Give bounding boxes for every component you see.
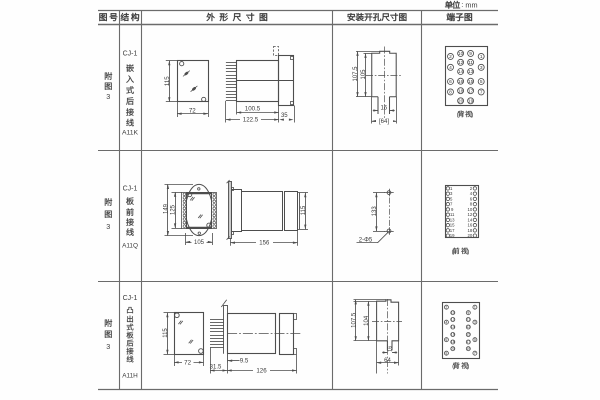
svg-text:11: 11: [450, 212, 455, 217]
svg-text:149: 149: [163, 203, 169, 214]
svg-text:3: 3: [106, 342, 110, 351]
svg-text:10: 10: [451, 311, 455, 315]
svg-text:115: 115: [163, 328, 169, 338]
svg-text:19: 19: [468, 98, 474, 104]
svg-text:3: 3: [474, 320, 476, 324]
svg-text:CJ-1: CJ-1: [123, 186, 138, 193]
svg-text:6: 6: [445, 338, 447, 342]
svg-text:14: 14: [458, 69, 464, 75]
svg-text:18: 18: [451, 340, 455, 344]
svg-text:20: 20: [468, 233, 473, 238]
svg-text:CJ-1: CJ-1: [123, 295, 138, 302]
svg-text:6: 6: [449, 79, 452, 85]
svg-text:19: 19: [466, 347, 470, 351]
svg-text:105: 105: [194, 240, 205, 246]
svg-text:35: 35: [281, 113, 288, 119]
svg-text:16: 16: [380, 105, 387, 111]
svg-text:17: 17: [466, 340, 470, 344]
svg-text:2: 2: [445, 305, 447, 309]
svg-text:19: 19: [450, 233, 455, 238]
svg-text:12: 12: [451, 318, 455, 322]
svg-text:11: 11: [468, 60, 473, 66]
svg-text:7: 7: [480, 90, 483, 96]
svg-text:[64]: [64]: [379, 119, 389, 125]
svg-text:16: 16: [388, 346, 394, 352]
svg-text:17: 17: [468, 88, 474, 94]
svg-text:17: 17: [450, 228, 455, 233]
svg-text:3: 3: [106, 222, 110, 231]
svg-text:CJ-1: CJ-1: [123, 50, 138, 57]
svg-text:): ): [471, 111, 473, 118]
svg-text:A11K: A11K: [122, 129, 139, 136]
svg-text:2: 2: [449, 54, 452, 60]
svg-text:4: 4: [445, 320, 447, 324]
svg-text:104: 104: [364, 315, 370, 326]
svg-text:1: 1: [480, 54, 483, 60]
svg-text:1: 1: [474, 305, 476, 309]
svg-text:11: 11: [466, 318, 470, 322]
svg-text:12: 12: [468, 212, 473, 217]
svg-text:15: 15: [468, 79, 474, 85]
svg-text:): ): [467, 363, 469, 370]
svg-text:122.5: 122.5: [243, 117, 259, 124]
svg-text:2-Φ5: 2-Φ5: [359, 237, 373, 243]
svg-text:16: 16: [451, 333, 455, 337]
svg-text:115: 115: [164, 76, 171, 86]
svg-text:): ): [467, 248, 469, 255]
svg-text:20: 20: [451, 347, 455, 351]
svg-text:18: 18: [468, 228, 473, 233]
svg-text:9: 9: [467, 311, 469, 315]
svg-text:12: 12: [458, 60, 464, 66]
svg-text:3: 3: [106, 92, 110, 101]
svg-text:115: 115: [301, 205, 307, 215]
svg-text:A11Q: A11Q: [122, 242, 138, 249]
svg-text:9.5: 9.5: [240, 358, 249, 365]
svg-text:64: 64: [384, 358, 391, 364]
svg-text:15: 15: [450, 223, 455, 228]
svg-text:8: 8: [445, 351, 447, 355]
svg-text:7: 7: [474, 351, 476, 355]
svg-text:20: 20: [458, 98, 464, 104]
svg-text:3: 3: [480, 65, 483, 71]
svg-text:133: 133: [372, 206, 378, 217]
svg-text:5: 5: [474, 338, 476, 342]
svg-text:13: 13: [466, 325, 470, 329]
svg-text:A11H: A11H: [122, 372, 138, 379]
svg-text::: :: [461, 0, 463, 9]
svg-text:14: 14: [451, 325, 455, 329]
svg-text:8: 8: [449, 90, 452, 96]
svg-text:72: 72: [189, 108, 196, 115]
svg-text:100.5: 100.5: [245, 105, 261, 112]
svg-text:105: 105: [361, 69, 367, 80]
svg-text:4: 4: [449, 65, 452, 71]
svg-text:15: 15: [466, 333, 470, 337]
svg-text:16: 16: [458, 79, 464, 85]
svg-text:mm: mm: [465, 1, 477, 10]
svg-text:16: 16: [468, 223, 473, 228]
svg-text:9: 9: [469, 51, 472, 57]
svg-text:125: 125: [171, 204, 177, 215]
svg-text:5: 5: [480, 79, 483, 85]
svg-text:107.5: 107.5: [351, 312, 357, 328]
svg-text:72: 72: [184, 359, 191, 366]
svg-text:13: 13: [468, 69, 474, 75]
svg-text:156: 156: [259, 241, 270, 247]
svg-text:126: 126: [256, 368, 267, 375]
svg-text:10: 10: [458, 51, 464, 57]
svg-text:31.5: 31.5: [210, 364, 222, 370]
svg-text:107.5: 107.5: [353, 66, 359, 82]
svg-text:18: 18: [458, 88, 464, 94]
